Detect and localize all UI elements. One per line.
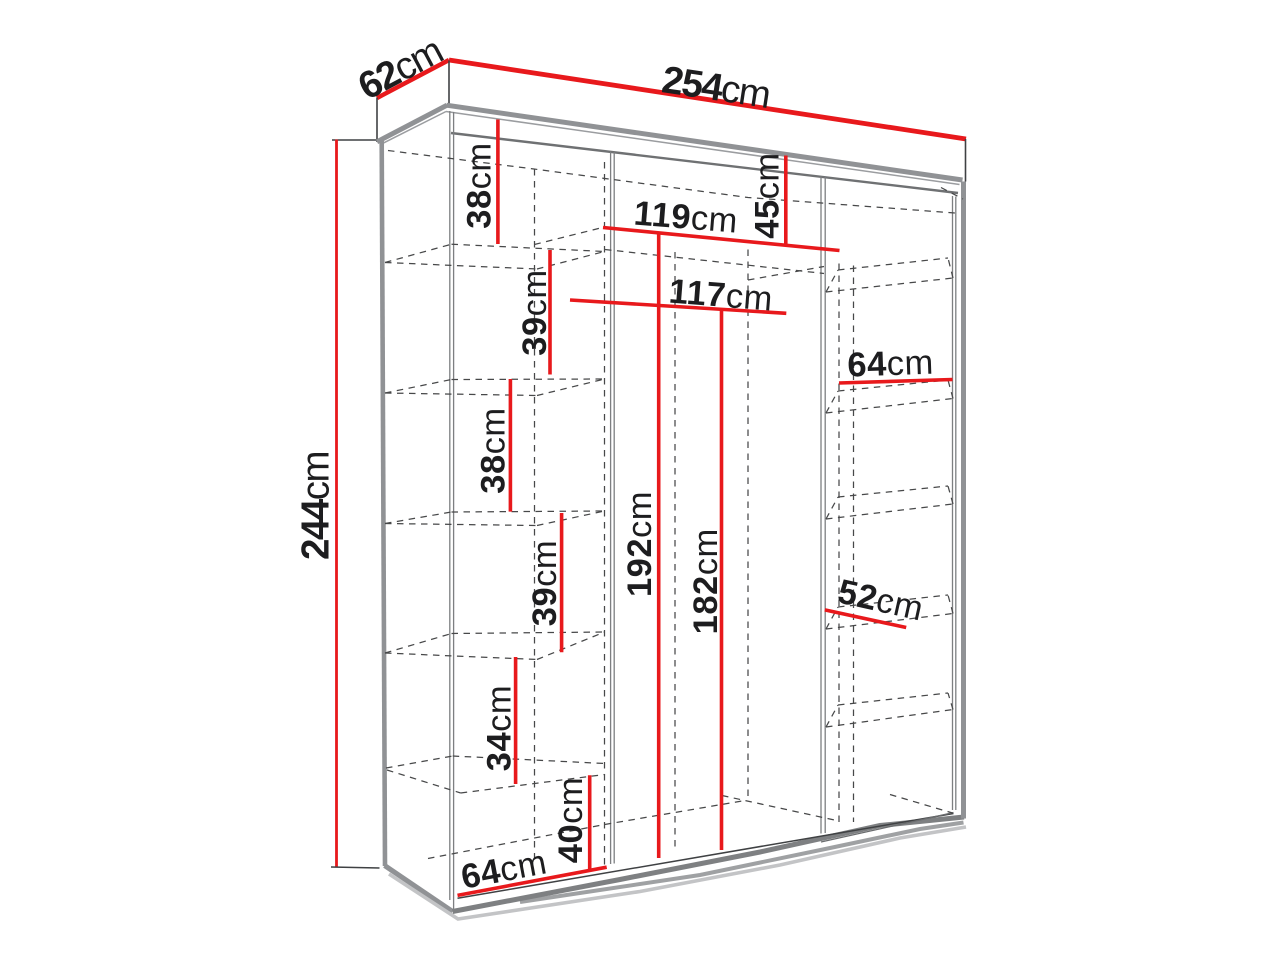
svg-text:182cm: 182cm [687, 528, 725, 634]
svg-text:45cm: 45cm [748, 152, 786, 238]
svg-text:38cm: 38cm [461, 142, 499, 228]
svg-text:38cm: 38cm [475, 407, 513, 493]
svg-text:34cm: 34cm [481, 685, 519, 771]
svg-text:244cm: 244cm [295, 452, 338, 560]
svg-text:64cm: 64cm [847, 344, 935, 385]
svg-text:39cm: 39cm [516, 269, 554, 355]
svg-text:119cm: 119cm [632, 195, 739, 241]
svg-text:39cm: 39cm [526, 540, 564, 626]
svg-text:192cm: 192cm [621, 491, 659, 597]
svg-text:40cm: 40cm [552, 777, 590, 863]
